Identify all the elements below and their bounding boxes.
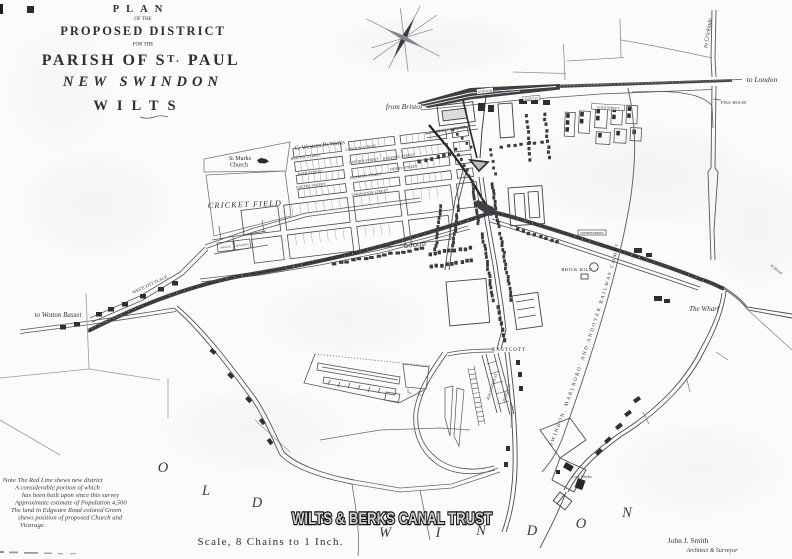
svg-text:O: O <box>158 460 169 476</box>
svg-text:PROPOSED DISTRICT: PROPOSED DISTRICT <box>60 24 226 38</box>
svg-text:PIKE HOUSE: PIKE HOUSE <box>721 100 747 105</box>
svg-text:D: D <box>251 495 263 511</box>
svg-text:Scale, 8 Chains to 1 Inch.: Scale, 8 Chains to 1 Inch. <box>198 536 343 548</box>
svg-text:from Bristol: from Bristol <box>386 102 422 111</box>
svg-text:PARISH OF ST. PAUL: PARISH OF ST. PAUL <box>42 52 240 69</box>
svg-text:Note The Red Line shews new d: Note The Red Line shews new district <box>3 477 103 484</box>
svg-text:WILTS & BERKS CANAL TRUST: WILTS & BERKS CANAL TRUST <box>292 510 492 528</box>
svg-text:PLAN: PLAN <box>113 4 170 15</box>
svg-text:The Wharf: The Wharf <box>689 305 720 313</box>
svg-text:N: N <box>621 505 633 521</box>
svg-text:to London: to London <box>747 75 778 84</box>
svg-text:BRICK KILN: BRICK KILN <box>561 267 592 272</box>
svg-text:NEW SWINDON: NEW SWINDON <box>62 74 223 90</box>
svg-text:EASTCOTT: EASTCOTT <box>492 347 526 353</box>
svg-text:OF THE: OF THE <box>134 17 151 22</box>
svg-text:D: D <box>526 523 538 539</box>
svg-text:Approximate estimate of Popula: Approximate estimate of Population 4,500 <box>14 500 127 507</box>
svg-text:L: L <box>201 483 210 499</box>
svg-text:has been built upon since this: has been built upon since this survey <box>22 492 119 499</box>
svg-text:Gas Works: Gas Works <box>572 474 592 479</box>
svg-text:to Wotton Basset: to Wotton Basset <box>35 311 83 319</box>
svg-text:A considerable portion of whic: A considerable portion of which <box>14 485 101 492</box>
svg-text:Architect & Surveyor: Architect & Surveyor <box>685 548 738 554</box>
svg-text:shews position of proposed Chu: shews position of proposed Church and <box>18 515 123 522</box>
svg-text:O: O <box>576 516 587 532</box>
svg-text:FOR THE: FOR THE <box>133 43 154 48</box>
svg-text:WEDNESBURY: WEDNESBURY <box>580 231 604 235</box>
svg-text:WILTS: WILTS <box>93 98 184 114</box>
svg-text:The land in Edgware Road color: The land in Edgware Road colored Green <box>11 507 122 514</box>
svg-text:John J. Smith: John J. Smith <box>668 536 709 545</box>
svg-text:Church: Church <box>230 162 249 169</box>
svg-text:Vicarage.: Vicarage. <box>20 522 46 529</box>
